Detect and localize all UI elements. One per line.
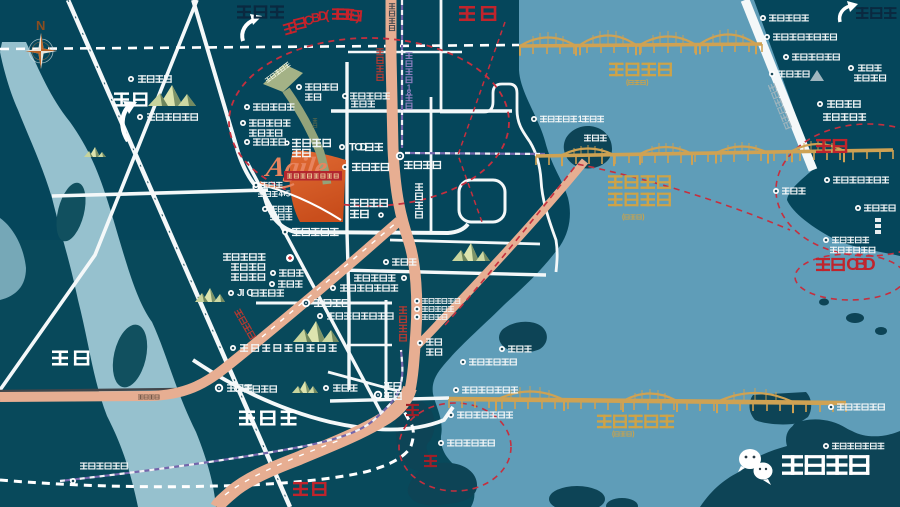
svg-text:): ) bbox=[632, 431, 634, 438]
svg-text:D: D bbox=[863, 254, 876, 274]
svg-text:5: 5 bbox=[286, 190, 291, 199]
svg-text:I: I bbox=[242, 288, 245, 299]
svg-text:N: N bbox=[36, 18, 45, 33]
svg-text:): ) bbox=[646, 80, 648, 87]
svg-text:): ) bbox=[642, 214, 644, 221]
